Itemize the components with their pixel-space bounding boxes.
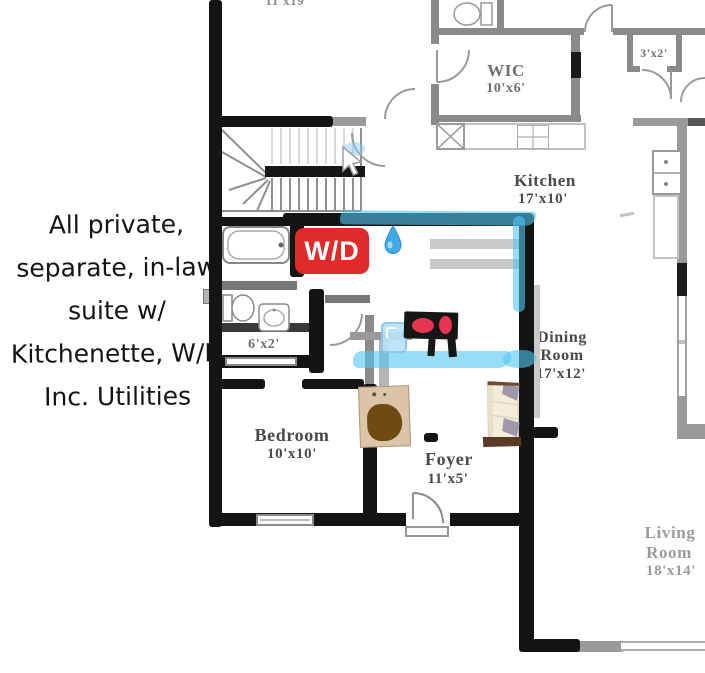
furniture-photo-couch [480, 381, 525, 449]
marker-wall-topleft [209, 116, 333, 127]
foyer-door-arc [408, 488, 448, 524]
bedroom-window [256, 514, 314, 526]
foyer-threshold [405, 526, 449, 537]
floor-plan-image: All private, separate, in-law suite w/ K… [0, 0, 705, 673]
marker-wall-dining-stub [532, 427, 558, 438]
stove-burner-right [439, 316, 452, 334]
living-label-2: Room [619, 543, 705, 563]
kitchen-label: Kitchen [495, 171, 595, 191]
foyer-dims: 11'x5' [398, 471, 498, 488]
kitchen-dims: 17'x10' [493, 191, 593, 208]
upper-room-dims: 11'x19' [247, 0, 327, 9]
highlight-right-wall [513, 216, 525, 312]
foyer-label: Foyer [399, 449, 499, 470]
water-drop-icon [383, 225, 403, 254]
drawn-stove [402, 309, 464, 361]
highlight-blob [503, 350, 536, 368]
photo-dot-1 [372, 392, 376, 396]
cabinet-x-lines [437, 124, 464, 149]
bedroom-label: Bedroom [232, 425, 352, 446]
stove-burner-left [412, 318, 434, 333]
toilet-top-icon [454, 3, 492, 25]
living-label-1: Living [620, 523, 705, 543]
stove-leg-left [427, 339, 435, 356]
highlight-kitchen-top [340, 210, 536, 225]
sink-icon [259, 304, 289, 331]
wd-badge-label: W/D [304, 236, 359, 267]
sink-unit-lines [653, 160, 681, 186]
bathtub-icon [223, 227, 289, 263]
photo-table-top [367, 403, 403, 441]
marker-wall-left [209, 0, 222, 527]
wic-label: WIC [466, 61, 546, 81]
bedroom-dims: 10'x10' [232, 446, 352, 463]
wd-badge: W/D [295, 228, 369, 274]
furniture-photo-table [358, 385, 411, 448]
toilet-icon [223, 295, 254, 321]
appliance-grid-lines [518, 126, 548, 148]
wic-door-panel [571, 52, 581, 78]
foyer-dash-mark [424, 433, 438, 442]
bath-closet-dims: 6'x2' [234, 337, 294, 353]
photo-dot-2 [383, 393, 386, 396]
ice-cube-shine [386, 327, 397, 339]
white-arrow-cursor-icon [337, 141, 365, 177]
window-line [260, 519, 310, 521]
bath-closet-window [225, 357, 297, 366]
marker-wall-bottom-right [519, 639, 580, 652]
marker-wall-tubroom-top [209, 217, 293, 226]
living-dims: 18'x14' [621, 563, 705, 580]
marker-wall-bed-top-right [302, 379, 364, 389]
closet-dims: 3'x2' [629, 46, 679, 61]
wic-dims: 10'x6' [466, 81, 546, 97]
marker-wall-bed-top-left [209, 379, 265, 389]
